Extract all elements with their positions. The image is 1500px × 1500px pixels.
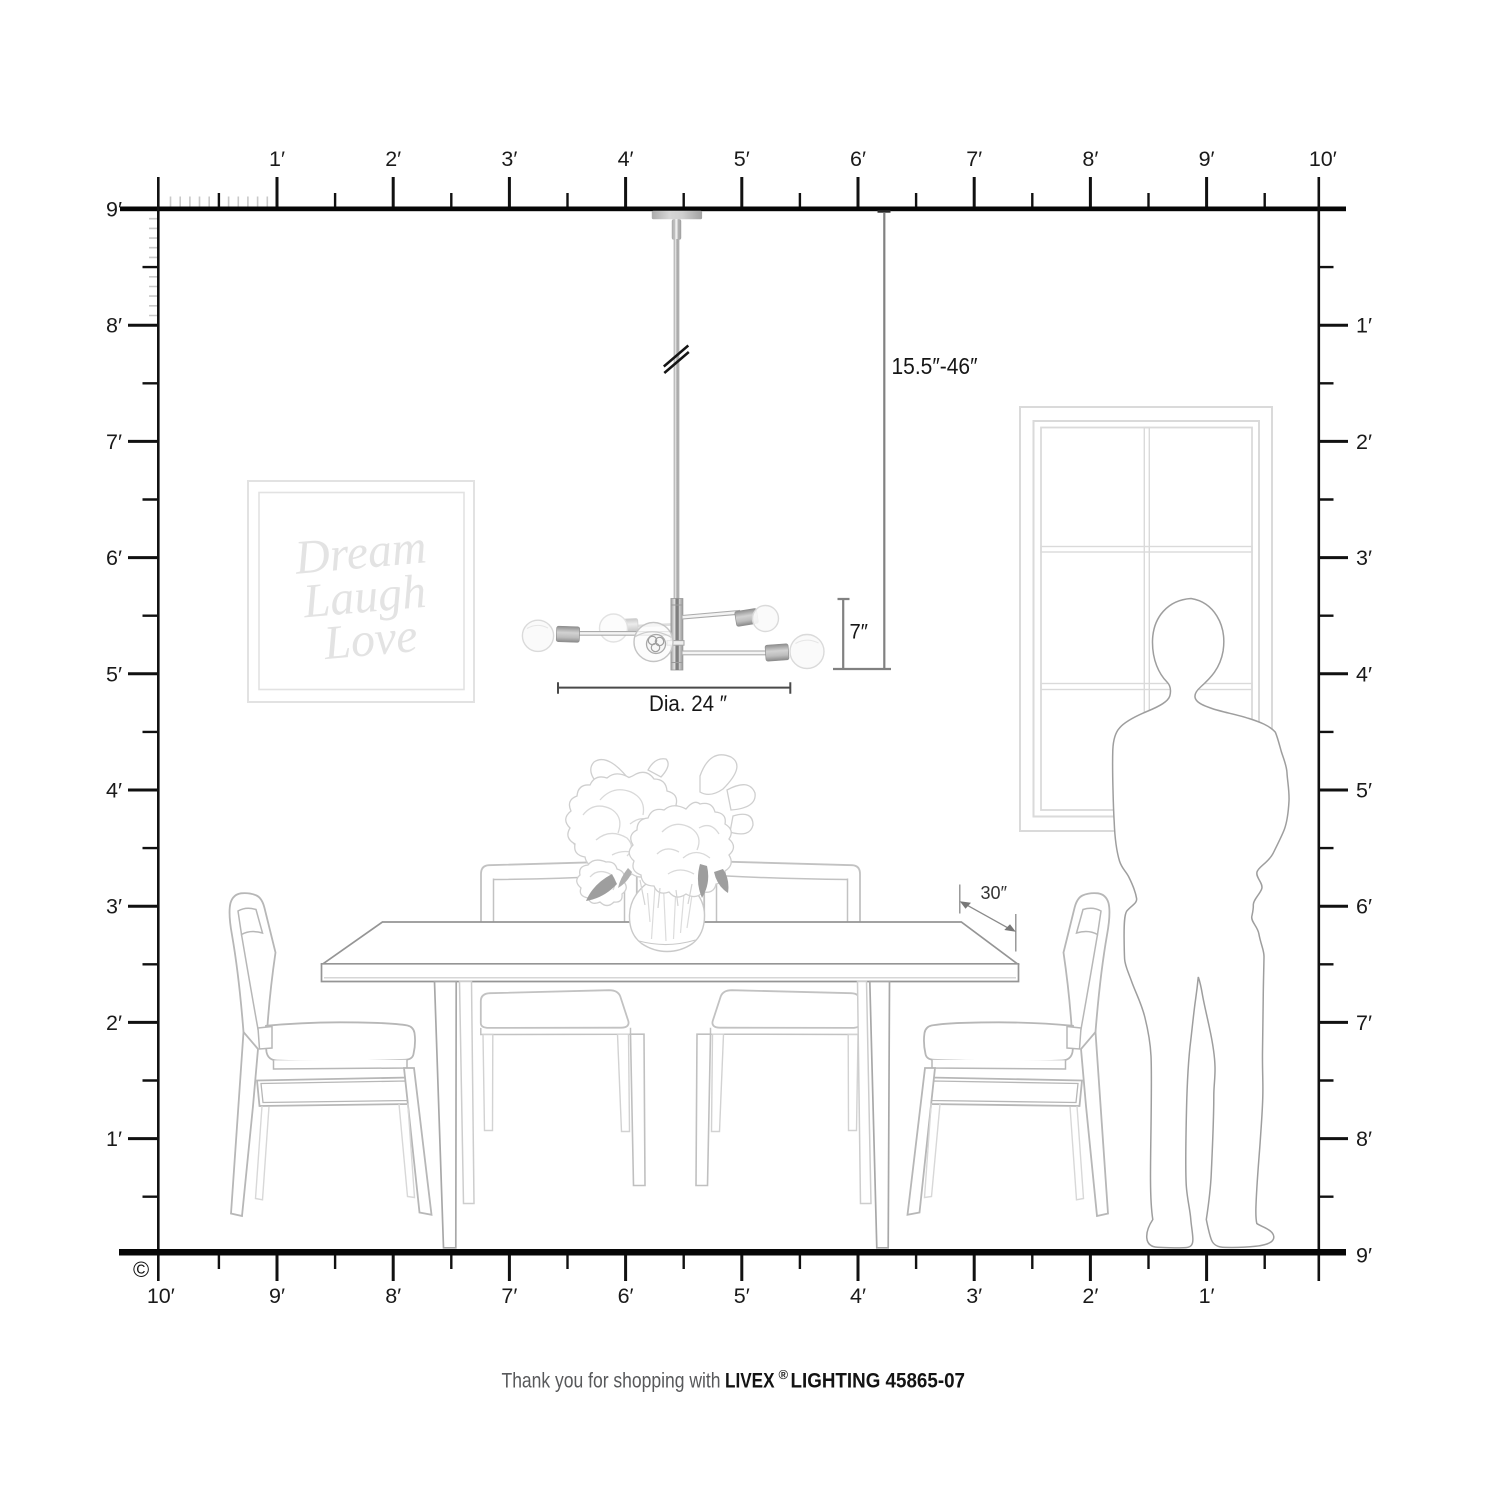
svg-text:9′: 9′ bbox=[269, 1284, 285, 1308]
svg-text:6′: 6′ bbox=[850, 147, 866, 171]
svg-text:8′: 8′ bbox=[106, 314, 122, 338]
svg-text:Love: Love bbox=[321, 609, 420, 670]
svg-text:5′: 5′ bbox=[734, 147, 750, 171]
svg-text:10′: 10′ bbox=[1309, 147, 1337, 171]
svg-text:7″: 7″ bbox=[850, 620, 869, 644]
svg-text:2′: 2′ bbox=[385, 147, 401, 171]
svg-text:30″: 30″ bbox=[981, 883, 1008, 903]
svg-text:2′: 2′ bbox=[1082, 1284, 1098, 1308]
svg-text:LIGHTING 45865-07: LIGHTING 45865-07 bbox=[791, 1369, 966, 1393]
svg-text:8′: 8′ bbox=[385, 1284, 401, 1308]
svg-text:®: ® bbox=[779, 1367, 789, 1382]
svg-text:4′: 4′ bbox=[106, 779, 122, 803]
svg-text:3′: 3′ bbox=[501, 147, 517, 171]
svg-text:4′: 4′ bbox=[618, 147, 634, 171]
svg-text:Thank you for shopping with: Thank you for shopping with bbox=[502, 1370, 721, 1393]
svg-text:1′: 1′ bbox=[1199, 1284, 1215, 1308]
svg-text:6′: 6′ bbox=[618, 1284, 634, 1308]
svg-text:Dia. 24 ″: Dia. 24 ″ bbox=[649, 691, 727, 716]
svg-text:7′: 7′ bbox=[106, 430, 122, 454]
svg-text:4′: 4′ bbox=[1356, 662, 1372, 686]
svg-text:5′: 5′ bbox=[1356, 779, 1372, 803]
svg-text:4′: 4′ bbox=[850, 1284, 866, 1308]
svg-text:15.5″-46″: 15.5″-46″ bbox=[892, 353, 978, 379]
svg-text:10′: 10′ bbox=[147, 1284, 175, 1308]
svg-text:3′: 3′ bbox=[1356, 546, 1372, 570]
svg-text:LIVEX: LIVEX bbox=[725, 1369, 775, 1393]
svg-text:6′: 6′ bbox=[106, 546, 122, 570]
svg-text:7′: 7′ bbox=[1356, 1011, 1372, 1035]
svg-text:1′: 1′ bbox=[106, 1127, 122, 1151]
svg-text:©: © bbox=[133, 1257, 149, 1282]
svg-text:6′: 6′ bbox=[1356, 895, 1372, 919]
svg-text:9′: 9′ bbox=[1199, 147, 1215, 171]
svg-text:2′: 2′ bbox=[1356, 430, 1372, 454]
svg-text:7′: 7′ bbox=[966, 147, 982, 171]
svg-text:8′: 8′ bbox=[1356, 1127, 1372, 1151]
svg-text:3′: 3′ bbox=[966, 1284, 982, 1308]
svg-text:1′: 1′ bbox=[1356, 314, 1372, 338]
svg-text:3′: 3′ bbox=[106, 895, 122, 919]
svg-text:8′: 8′ bbox=[1082, 147, 1098, 171]
svg-text:9′: 9′ bbox=[106, 198, 122, 222]
svg-text:5′: 5′ bbox=[734, 1284, 750, 1308]
svg-text:7′: 7′ bbox=[501, 1284, 517, 1308]
svg-text:2′: 2′ bbox=[106, 1011, 122, 1035]
svg-text:1′: 1′ bbox=[269, 147, 285, 171]
svg-text:5′: 5′ bbox=[106, 662, 122, 686]
svg-text:9′: 9′ bbox=[1356, 1243, 1372, 1267]
